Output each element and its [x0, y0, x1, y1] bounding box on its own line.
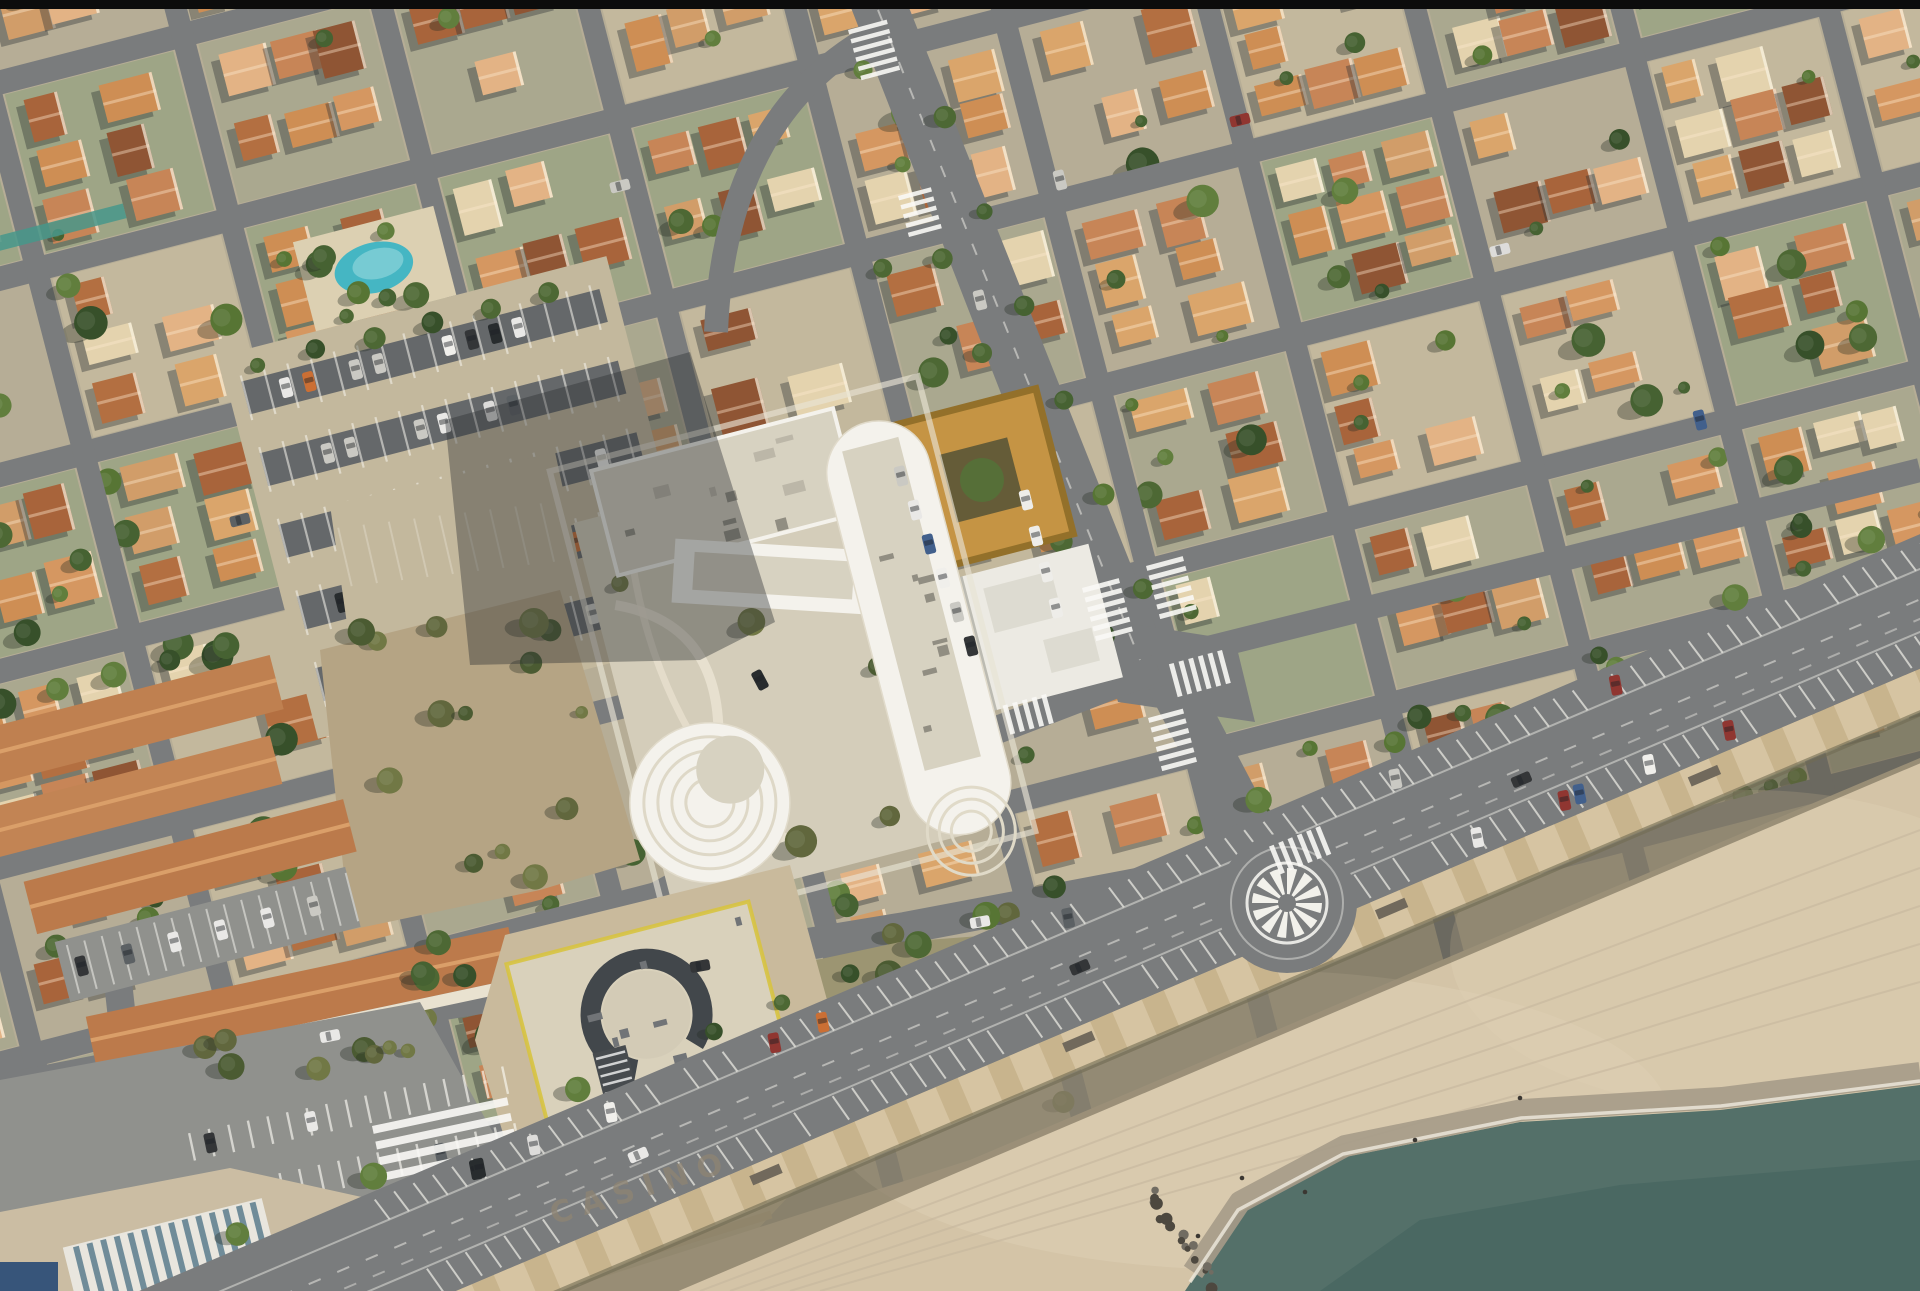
- street-details-layer: [0, 0, 1920, 1291]
- aerial-scene: CASINO: [0, 0, 1920, 1291]
- aerial-photo: CASINO: [0, 0, 1920, 1291]
- photo-edge-strip: [0, 0, 1920, 9]
